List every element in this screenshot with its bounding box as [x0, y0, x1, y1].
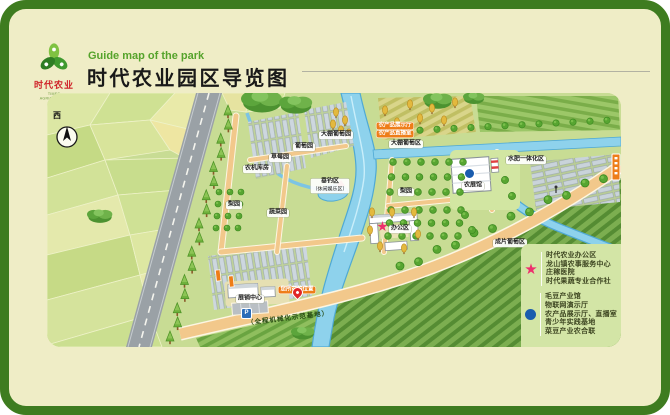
header-divider [302, 71, 650, 72]
map-label: 成片葡萄区 [493, 239, 527, 247]
logo-tree-icon [37, 42, 71, 74]
park-map: 农机库房草莓园葡萄园大棚葡萄园大棚葡萄区梨园蔬菜园垂钓区（休闲娱乐区）展销中心梨… [47, 93, 621, 347]
map-label: 梨园 [398, 188, 414, 196]
map-label: 展销中心 [236, 295, 264, 303]
map-label: 垂钓区（休闲娱乐区） [310, 179, 349, 194]
legend-item: 菜豆产业农合联 [545, 328, 617, 337]
legend-item: 青少年实践基地 [545, 319, 617, 328]
map-label: 水肥一体化区 [506, 156, 546, 164]
legend-panel: 时代农业办公区龙山镇农事服务中心庄稼医院时代果蔬专业合作社毛豆产业馆物联网演示厅… [521, 244, 621, 347]
map-label: 葡萄园 [293, 143, 315, 151]
legend-item: 毛豆产业馆 [545, 293, 617, 302]
legend-group: 时代农业办公区龙山镇农事服务中心庄稼医院时代果蔬专业合作社 [525, 252, 619, 286]
map-label: 梨园 [226, 201, 242, 209]
map-label: 大棚葡萄园 [319, 131, 353, 139]
map-label: 草莓园 [269, 154, 291, 162]
parking-icon: P [241, 308, 252, 319]
legend-item: 时代果蔬专业合作社 [546, 278, 611, 287]
legend-item: 物联网演示厅 [545, 302, 617, 311]
legend-item: 龙山镇农事服务中心 [546, 261, 611, 270]
star-marker-icon [525, 263, 537, 275]
map-label: 蔬菜园 [267, 209, 289, 217]
map-label: 大棚葡萄区 [389, 140, 423, 148]
page-title: 时代农业园区导览图 [87, 62, 290, 91]
map-label: 农机库房 [243, 165, 271, 173]
map-label: 农产品直播室 [376, 131, 413, 138]
guide-map-poster: 时代农业 TIMES AGRICULTURE Guide map of the … [0, 0, 670, 415]
logo-text: 时代农业 [34, 78, 74, 91]
legend-group: 毛豆产业馆物联网演示厅农产品展示厅、直播室青少年实践基地菜豆产业农合联 [525, 293, 619, 336]
subtitle-en: Guide map of the park [88, 50, 204, 62]
legend-item: 时代农业办公区 [546, 252, 611, 261]
legend-item: 农产品展示厅、直播室 [545, 311, 617, 320]
map-label: 办公区 [389, 225, 411, 233]
map-label: 农产品展示厅 [376, 123, 413, 130]
circle-marker-icon [525, 309, 536, 320]
circle-marker-icon [464, 168, 475, 179]
compass-west-label: 西 [53, 110, 61, 121]
map-label: 农展馆 [462, 182, 484, 190]
legend-item: 庄稼医院 [546, 269, 611, 278]
